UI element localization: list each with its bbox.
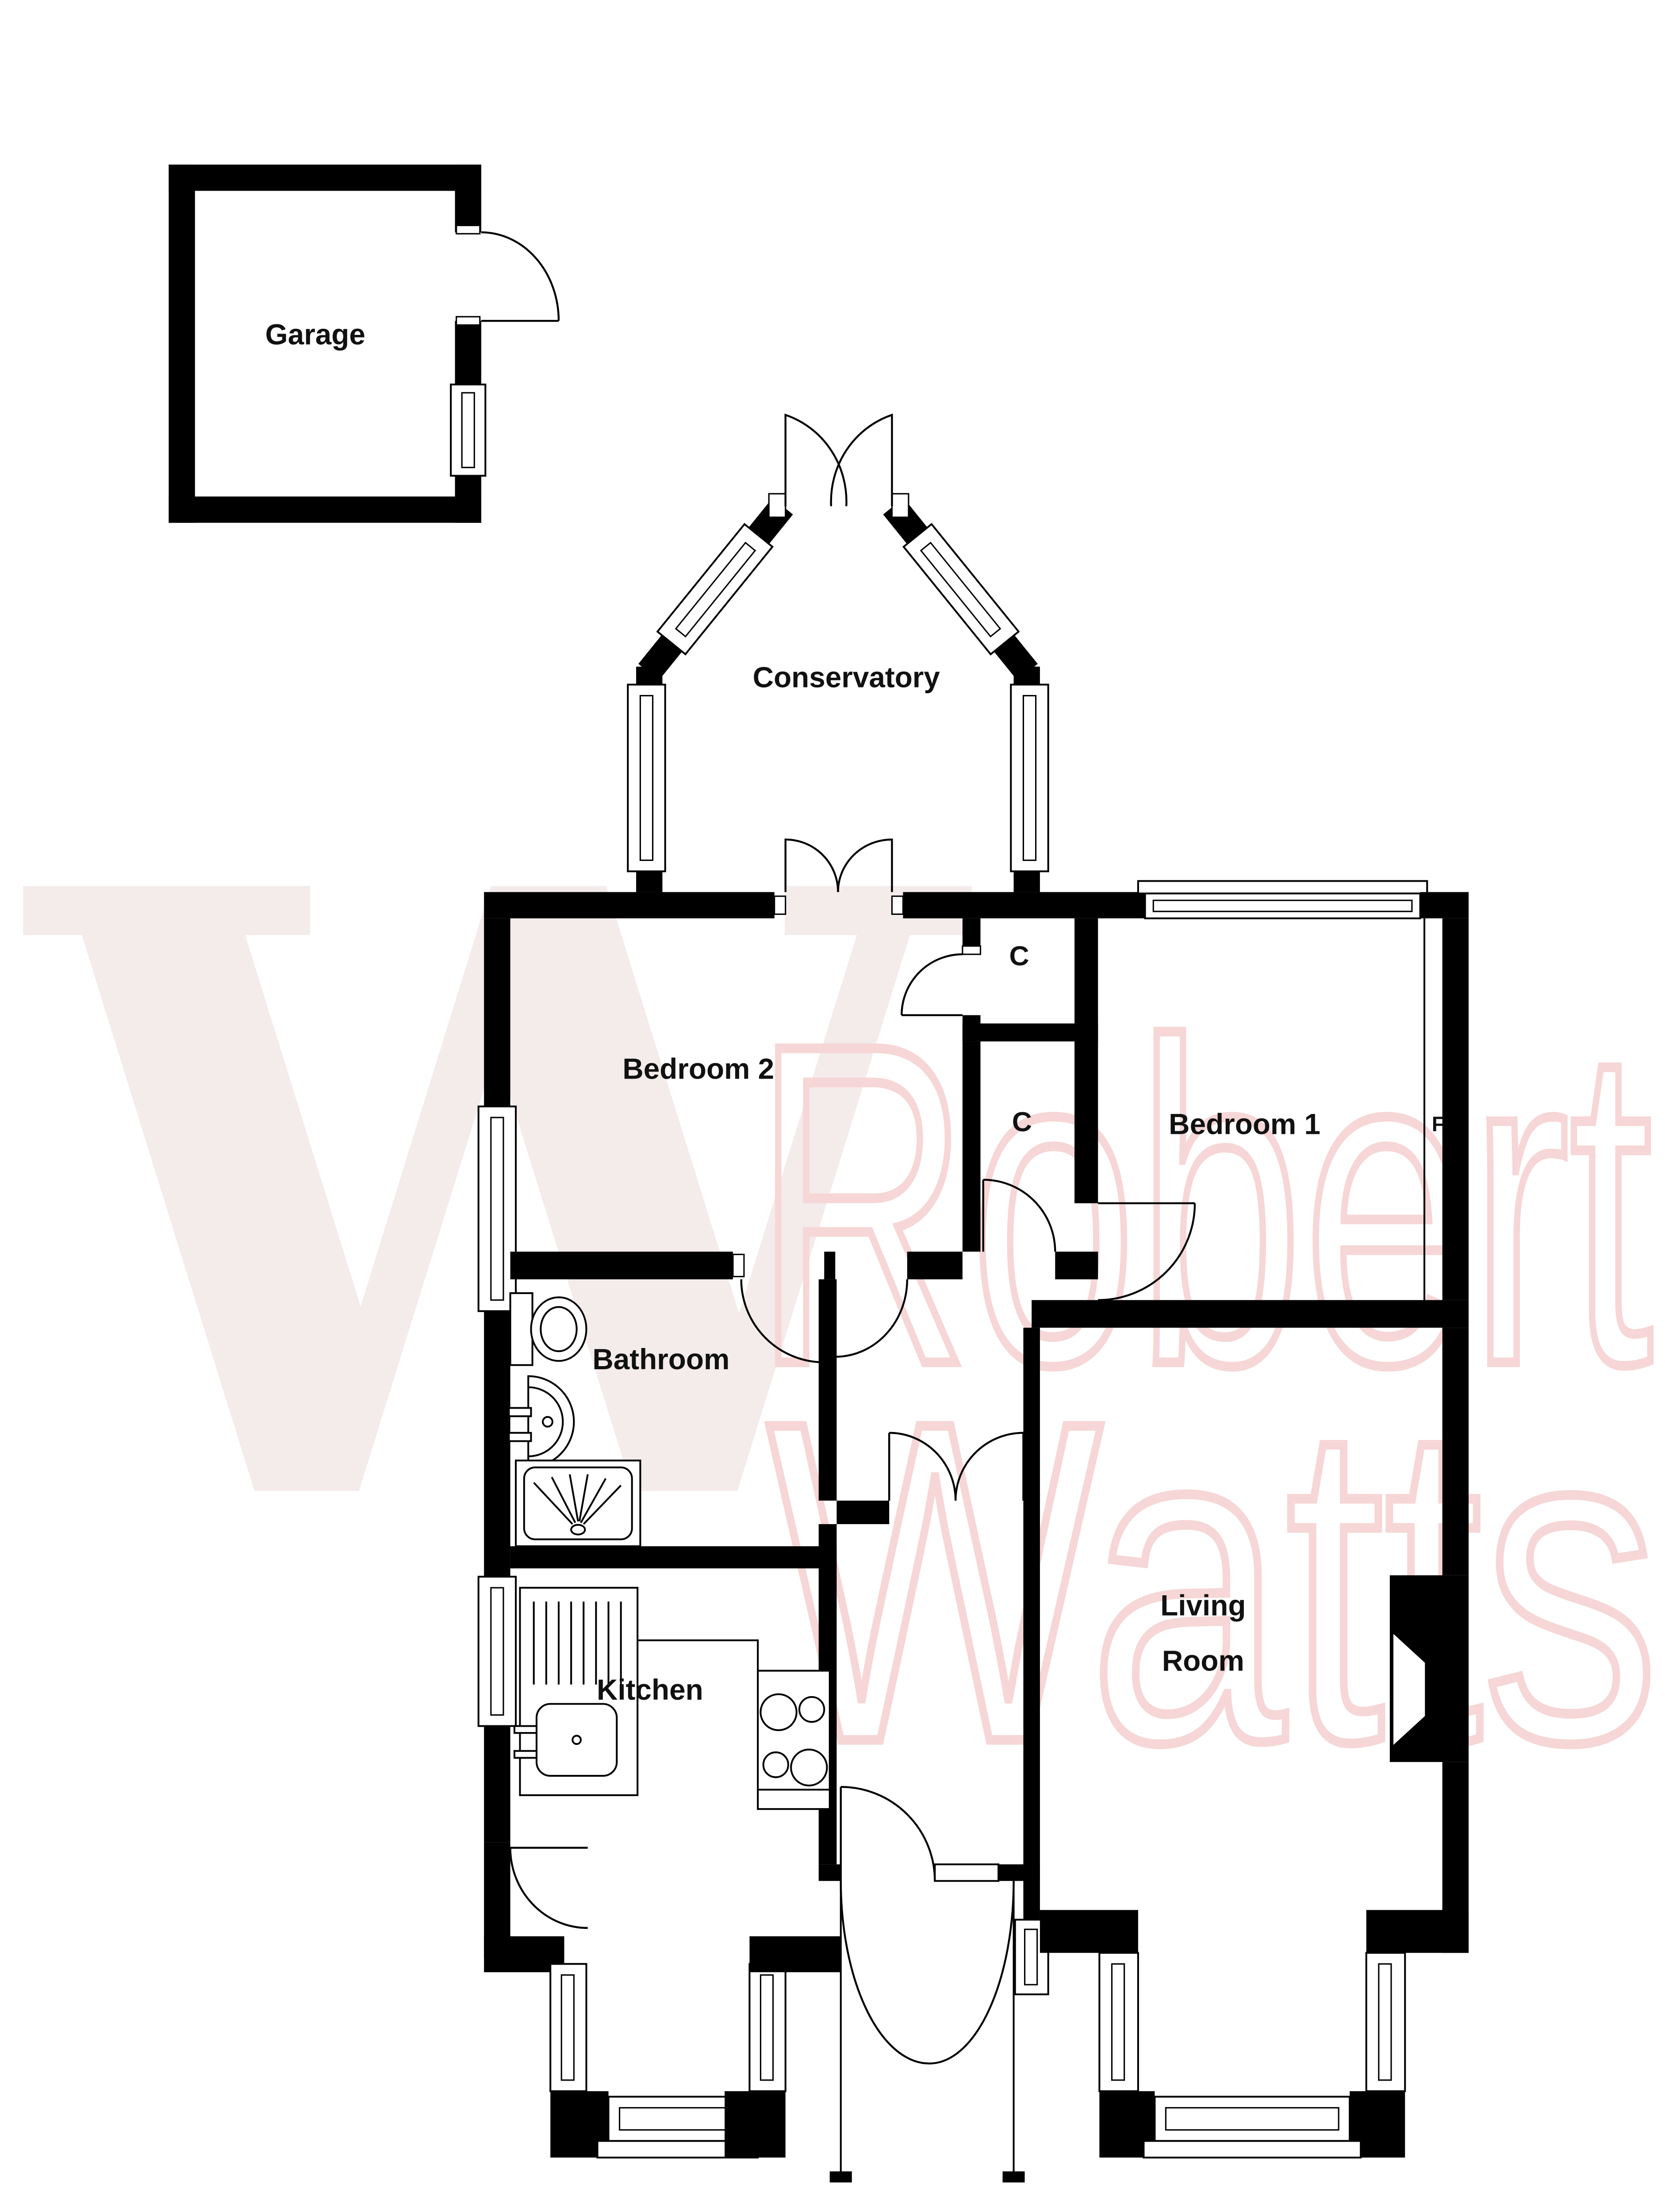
shower-drain bbox=[571, 1525, 585, 1535]
bay-window-bottom-pane bbox=[1166, 2108, 1339, 2130]
bedroom1-label: Bedroom 1 bbox=[1169, 1108, 1320, 1141]
porch-window-bottom-pane bbox=[620, 2108, 736, 2130]
basin-tap-2 bbox=[509, 1433, 531, 1441]
top-wall-right bbox=[1420, 892, 1469, 918]
toilet-bowl-inner bbox=[541, 1307, 576, 1351]
kitchen-hob bbox=[758, 1671, 830, 1809]
vestibule-wall-left bbox=[819, 1864, 841, 1881]
living-room-label-line2: Room bbox=[1162, 1644, 1244, 1677]
living-room-top-wall bbox=[1032, 1300, 1469, 1328]
vestibule-wall-right bbox=[998, 1864, 1040, 1881]
porch-window-left-pane bbox=[561, 1975, 574, 2080]
garage-door-jamb-bottom bbox=[457, 317, 480, 325]
garage-label: Garage bbox=[265, 318, 365, 350]
wall-bed2-bath-mid bbox=[824, 1252, 835, 1279]
bedroom1-window-pane bbox=[1153, 900, 1412, 911]
living-room-bottom-wall-right bbox=[1366, 1910, 1469, 1953]
right-wall-living-upper bbox=[1442, 1328, 1469, 1575]
garage-wall-right-mid bbox=[455, 321, 481, 384]
conservatory-door-jamb-left bbox=[769, 494, 786, 517]
porch-corner-right bbox=[725, 2091, 786, 2158]
conservatory-window-left-pane bbox=[640, 695, 652, 860]
living-room-bottom-wall-left bbox=[1040, 1910, 1138, 1953]
living-room-left-wall bbox=[1023, 1328, 1040, 1920]
bay-window-left-pane bbox=[1112, 1964, 1124, 2080]
bathroom-door-jamb-left bbox=[733, 1255, 744, 1277]
bedroom2-window-pane bbox=[491, 1118, 503, 1300]
living-room-label-line1: Living bbox=[1160, 1589, 1246, 1621]
bathroom-bottom-wall bbox=[510, 1546, 837, 1568]
closet-upper-label: C bbox=[1009, 941, 1029, 972]
top-wall-mid bbox=[903, 892, 1145, 918]
garage-wall-right-lower bbox=[455, 476, 481, 522]
living-room-side-window-pane bbox=[1025, 1929, 1037, 1985]
closet-lower-bottom-stub bbox=[1055, 1252, 1098, 1279]
conservatory-label: Conservatory bbox=[753, 661, 940, 694]
kitchen-tap-1 bbox=[514, 1726, 537, 1733]
porch-stub-right bbox=[749, 1936, 840, 1972]
left-wall-bathroom bbox=[484, 1311, 510, 1577]
garage-wall-right-upper bbox=[455, 165, 481, 232]
garage-door-jamb-top bbox=[457, 226, 480, 234]
bedroom2-label: Bedroom 2 bbox=[622, 1052, 774, 1085]
porch-foot-left bbox=[830, 2171, 852, 2182]
closet-lower-label: C bbox=[1012, 1106, 1032, 1137]
conservatory-window-right-pane bbox=[1023, 695, 1036, 860]
bedroom1-left-wall bbox=[1074, 918, 1098, 1203]
kitchen-tap-2 bbox=[514, 1751, 537, 1758]
conservatory-door-jamb-right bbox=[892, 494, 909, 517]
bay-window-bottom-sill bbox=[1143, 2141, 1361, 2158]
garage-wall-left bbox=[169, 165, 195, 523]
toilet-cistern bbox=[510, 1293, 533, 1365]
vestibule-sidelight bbox=[935, 1864, 998, 1881]
left-wall-bedroom2 bbox=[484, 918, 510, 1106]
garage-wall-bottom bbox=[169, 496, 481, 522]
kitchen-sink-bowl bbox=[537, 1704, 617, 1776]
bedroom2-french-jamb-right bbox=[892, 896, 903, 914]
kitchen-window-pane bbox=[491, 1588, 503, 1715]
bedroom2-french-jamb-left bbox=[775, 896, 786, 914]
bathroom-label: Bathroom bbox=[592, 1343, 729, 1375]
top-wall-left bbox=[484, 892, 775, 918]
closet-lower-left-wall bbox=[963, 1041, 981, 1252]
wall-bed2-bath-left bbox=[510, 1252, 733, 1279]
garage-wall-top bbox=[169, 165, 481, 191]
left-wall-kitchen bbox=[484, 1726, 510, 1843]
bathroom-right-wall bbox=[819, 1279, 837, 1501]
floorplan-svg: W Robert Watts Garage bbox=[0, 0, 1665, 2212]
garage-window-pane bbox=[462, 393, 474, 468]
kitchen-label: Kitchen bbox=[597, 1674, 703, 1706]
floorplan-page: W Robert Watts Garage bbox=[0, 0, 1665, 2212]
watermark-word-2: Watts bbox=[767, 1327, 1659, 1837]
wall-bed2-bath-right bbox=[907, 1252, 963, 1279]
bedroom1-window-sill bbox=[1138, 881, 1427, 893]
closet-upper-left-wall-top bbox=[963, 918, 981, 946]
porch-window-right-pane bbox=[760, 1975, 773, 2080]
hall-dd-wall-stub bbox=[836, 1501, 889, 1524]
basin-tap-1 bbox=[509, 1408, 531, 1417]
right-wall-bedroom1 bbox=[1442, 918, 1469, 1300]
bay-window-right-pane bbox=[1379, 1964, 1391, 2080]
porch-foot-right bbox=[1003, 2171, 1025, 2182]
closet-upper-jamb-top bbox=[963, 946, 981, 954]
